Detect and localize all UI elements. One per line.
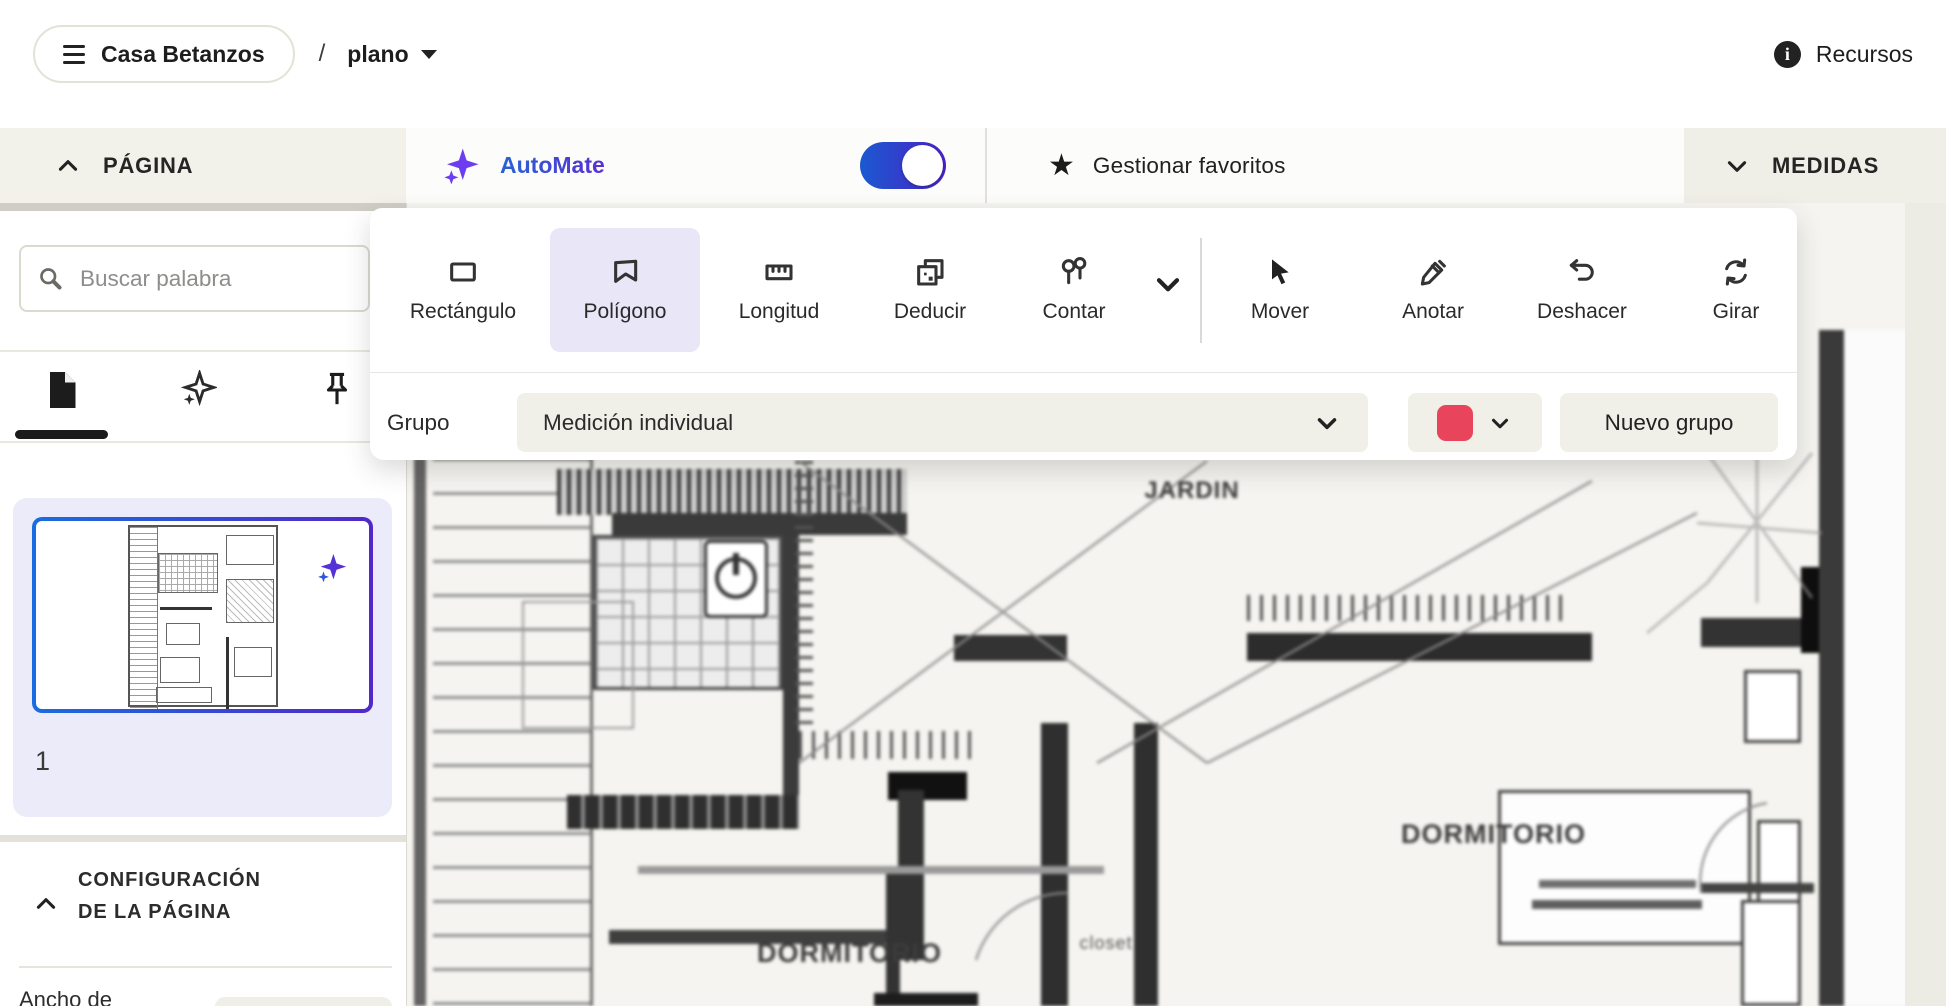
page-width-input[interactable] [215,997,392,1006]
pushpin-icon [320,370,354,410]
tool-move[interactable]: Mover [1205,228,1355,352]
toolbar-divider [1200,238,1202,343]
page-thumbnail-card[interactable]: 1 [13,498,392,817]
canvas-right-margin [1905,203,1946,1006]
measure-toolbar: Rectángulo Polígono Longitud Deducir [370,208,1797,460]
page-sidebar: 1 CONFIGURACIÓN DE LA PÁGINA Ancho de [0,211,406,1006]
sidebar-scrollbar[interactable] [0,203,406,211]
plan-label-bedroom-right: DORMITORIO [1401,819,1586,850]
chevron-down-icon [1724,153,1750,179]
resources-button[interactable]: i Recursos [1774,41,1913,68]
tool-rectangle[interactable]: Rectángulo [388,228,538,352]
automate-label: AutoMate [500,152,605,179]
chevron-down-icon [1312,408,1342,438]
page-thumbnail [32,517,373,713]
page-panel-label: PÁGINA [103,153,193,179]
page-select-dropdown[interactable]: plano [347,41,436,68]
rectangle-icon [447,256,479,288]
automate-toggle[interactable] [860,142,946,189]
search-field[interactable] [19,245,370,312]
secondary-bar: PÁGINA AutoMate ★ Gestionar favoritos ME… [0,128,1946,203]
page-panel-header[interactable]: PÁGINA [0,128,406,203]
cursor-icon [1264,256,1296,288]
tab-automate[interactable] [168,370,228,424]
tool-rotate[interactable]: Girar [1661,228,1811,352]
divider [19,966,392,968]
manage-favorites-label: Gestionar favoritos [1093,153,1286,179]
count-pins-icon [1058,256,1090,288]
tab-pages[interactable] [32,370,92,424]
group-select-value: Medición individual [543,410,733,436]
page-config-label: CONFIGURACIÓN DE LA PÁGINA [78,864,261,928]
chevron-up-icon [55,153,81,179]
measures-panel-label: MEDIDAS [1772,153,1879,179]
hamburger-icon [63,45,85,64]
section-divider [0,835,406,842]
sparkle-icon [440,145,482,187]
undo-icon [1566,256,1598,288]
document-icon [44,370,80,410]
pen-icon [1417,256,1449,288]
search-icon [37,265,64,292]
tool-deduct[interactable]: Deducir [855,228,1005,352]
tool-length[interactable]: Longitud [704,228,854,352]
automate-bar: AutoMate [406,128,985,203]
toggle-knob [902,145,943,186]
plan-label-garden: JARDIN [1107,477,1277,505]
plan-label-bedroom-bottom: DORMITORIO [757,938,942,969]
chevron-up-icon [33,891,59,917]
search-input[interactable] [78,265,318,293]
sparkle-icon [179,370,217,408]
sidebar-tabs [0,352,406,441]
breadcrumb-separator: / [319,40,326,68]
new-group-button[interactable]: Nuevo grupo [1560,393,1778,452]
measures-panel-header[interactable]: MEDIDAS [1684,128,1946,203]
count-options-chevron[interactable] [1150,266,1186,302]
app-window: Casa Betanzos / plano i Recursos PÁGINA … [0,0,1946,1006]
group-select[interactable]: Medición individual [517,393,1368,452]
active-tab-indicator [15,430,108,439]
plan-label-closet: closet [1071,933,1141,954]
info-icon: i [1774,41,1801,68]
chevron-down-icon [1487,410,1513,436]
automate-sparkle-badge [315,551,349,585]
group-color-picker[interactable] [1408,393,1542,452]
top-bar: Casa Betanzos / plano i Recursos [0,0,1946,128]
page-number: 1 [35,746,50,777]
ruler-icon [763,256,795,288]
chevron-down-icon [421,50,437,59]
tool-undo[interactable]: Deshacer [1507,228,1657,352]
polygon-flag-icon [609,256,641,288]
tab-pins[interactable] [307,370,367,424]
manage-favorites-button[interactable]: ★ Gestionar favoritos [985,128,1684,203]
tool-annotate[interactable]: Anotar [1358,228,1508,352]
resources-label: Recursos [1816,41,1913,68]
color-swatch [1437,405,1473,441]
toolbar-row-divider [370,372,1797,373]
rotate-icon [1720,256,1752,288]
deduct-icon [914,256,946,288]
page-select-label: plano [347,41,408,68]
project-menu-button[interactable]: Casa Betanzos [33,25,295,83]
tool-polygon[interactable]: Polígono [550,228,700,352]
page-width-label: Ancho de [19,987,112,1006]
tool-count[interactable]: Contar [999,228,1149,352]
project-name: Casa Betanzos [101,41,265,68]
star-icon: ★ [1048,151,1075,181]
group-label: Grupo [387,393,450,452]
